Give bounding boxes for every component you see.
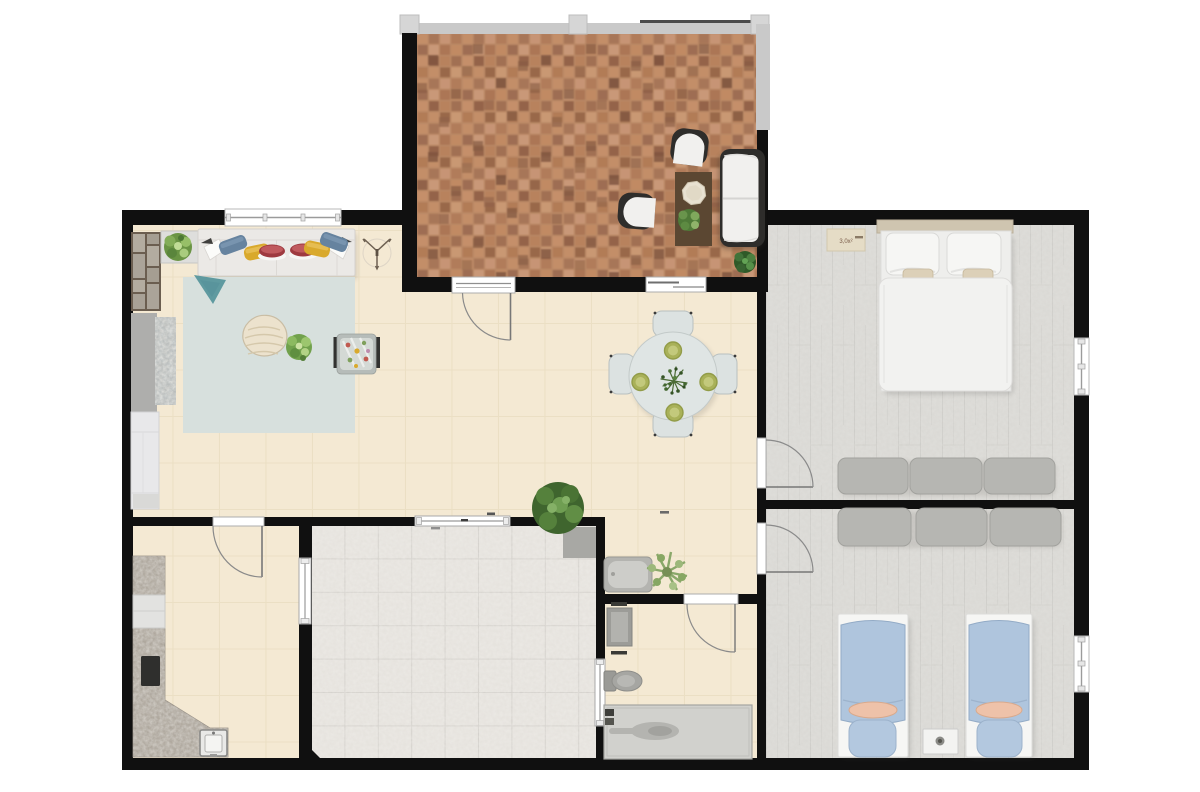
svg-text:3,0x²: 3,0x² xyxy=(839,239,852,245)
